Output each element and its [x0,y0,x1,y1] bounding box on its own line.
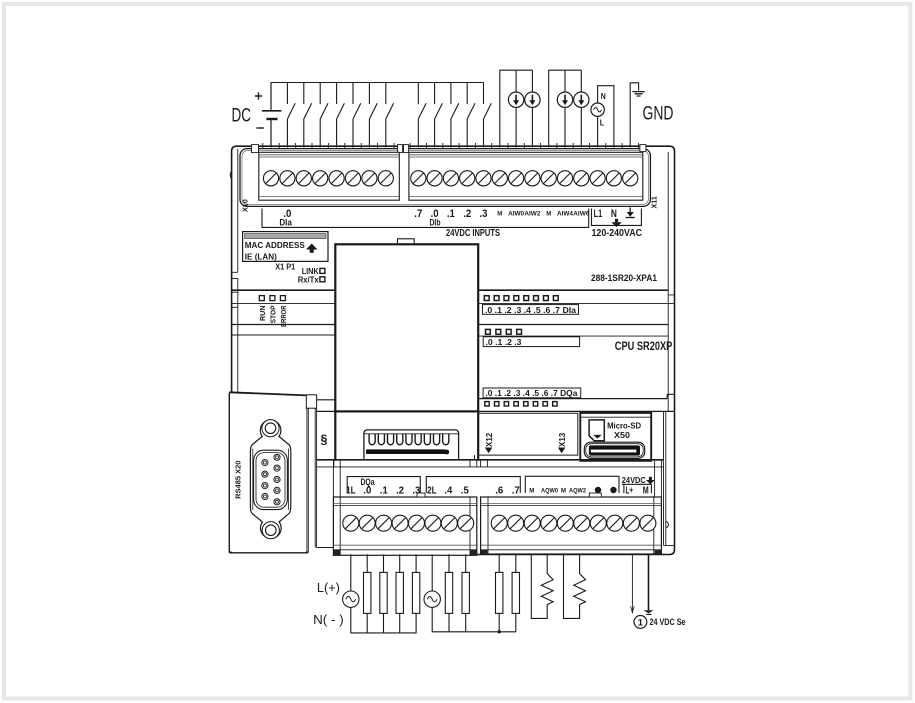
svg-text:M: M [497,211,502,218]
svg-text:L: L [600,118,605,127]
svg-text:.2: .2 [463,208,471,220]
svg-text:STOP: STOP [269,305,278,323]
svg-text:ERROR: ERROR [279,305,288,327]
svg-text:24 VDC Se: 24 VDC Se [650,617,686,627]
svg-text:.5: .5 [461,485,469,497]
svg-text:.7: .7 [414,208,422,220]
svg-text:.0: .0 [363,485,371,497]
svg-text:X11: X11 [649,196,658,208]
svg-text:DIb: DIb [430,218,441,228]
svg-text:.0 .1 .2 .3: .0 .1 .2 .3 [486,337,522,347]
svg-text:§: § [321,433,328,447]
svg-text:AIW4: AIW4 [557,211,573,218]
svg-text:2L: 2L [427,485,437,497]
svg-text:L+: L+ [626,486,634,497]
svg-text:MAC ADDRESS: MAC ADDRESS [245,240,305,250]
svg-text:Rx/Tx: Rx/Tx [298,275,320,284]
svg-text:DC: DC [232,106,252,127]
svg-text:M: M [529,488,534,495]
svg-text:24VDC INPUTS: 24VDC INPUTS [446,228,500,239]
svg-text:GND: GND [643,104,674,125]
svg-text:L1: L1 [594,208,603,220]
svg-text:120-240VAC: 120-240VAC [592,227,643,239]
svg-text:288-1SR20-XPA1: 288-1SR20-XPA1 [591,273,657,283]
svg-text:.1: .1 [447,208,455,220]
svg-text:N: N [601,92,606,101]
svg-text:.7: .7 [512,485,520,497]
svg-text:DIa: DIa [279,218,292,228]
svg-text:AQW0: AQW0 [541,488,558,495]
svg-text:N: N [611,208,617,220]
svg-text:.3: .3 [480,208,488,220]
svg-text:M: M [643,486,649,497]
svg-text:.1: .1 [380,485,388,497]
svg-text:.4: .4 [444,485,452,497]
svg-text:.0 .1 .2 .3 .4 .5 .6 .7 DIa: .0 .1 .2 .3 .4 .5 .6 .7 DIa [485,305,576,315]
svg-text:L(+): L(+) [317,580,340,595]
svg-text:X10: X10 [241,199,250,212]
svg-text:AIW0: AIW0 [508,211,524,218]
svg-text:AQW2: AQW2 [569,488,586,495]
svg-text:AIW6: AIW6 [573,211,589,218]
svg-text:RS485 X20: RS485 X20 [234,461,243,499]
svg-text:.6: .6 [495,485,503,497]
svg-text:N( - ): N( - ) [313,612,344,627]
svg-text:X50: X50 [614,430,630,440]
svg-text:IE (LAN): IE (LAN) [245,251,277,261]
svg-text:AIW2: AIW2 [524,211,540,218]
svg-text:1: 1 [638,617,644,628]
svg-text:X1 P1: X1 P1 [275,261,295,271]
svg-text:.0 .1 .2 .3 .4 .5 .6 .7 DQa: .0 .1 .2 .3 .4 .5 .6 .7 DQa [485,388,577,398]
svg-text:M: M [546,211,551,218]
svg-text:X13: X13 [558,432,567,447]
svg-text:CPU SR20XP: CPU SR20XP [615,339,673,353]
svg-text:.2: .2 [396,485,404,497]
svg-text:RUN: RUN [258,306,267,322]
svg-text:X12: X12 [485,432,494,447]
svg-text:1L: 1L [346,485,356,497]
svg-text:M: M [561,488,566,495]
